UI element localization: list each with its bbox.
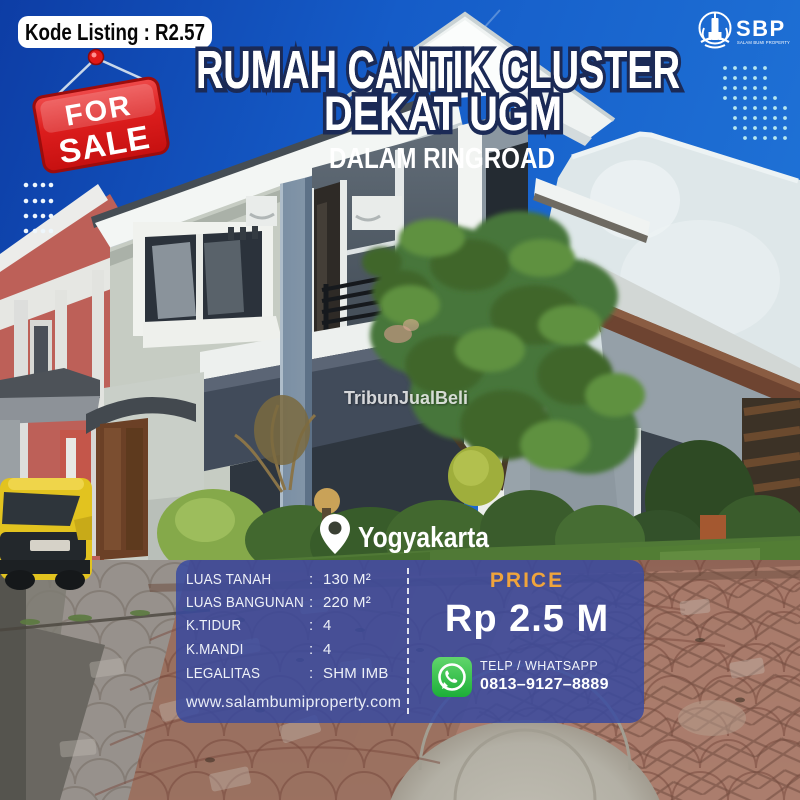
svg-text:SALAM BUMI PROPERTY: SALAM BUMI PROPERTY (737, 40, 790, 45)
svg-text:DALAM RINGROAD: DALAM RINGROAD (329, 143, 555, 175)
svg-text:SBP: SBP (736, 16, 786, 41)
svg-text:DEKAT UGM: DEKAT UGM (324, 88, 562, 141)
svg-text:Yogyakarta: Yogyakarta (358, 522, 490, 554)
